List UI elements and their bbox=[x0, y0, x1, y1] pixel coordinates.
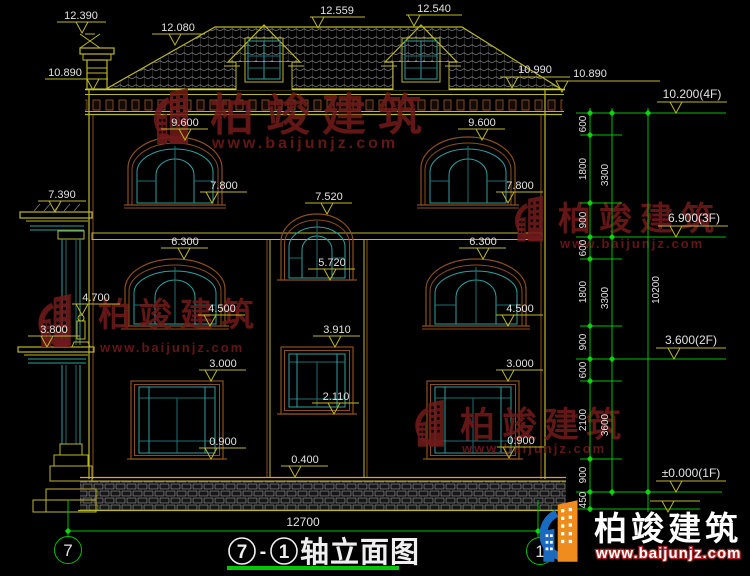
dim-6300-right: 6.300 bbox=[469, 236, 497, 248]
chain-dim: 600 bbox=[578, 115, 589, 132]
title-axis-start: 7 bbox=[237, 542, 248, 563]
dim-6300-left: 6.300 bbox=[171, 236, 199, 248]
dim-10890-left: 10.890 bbox=[48, 67, 82, 79]
window-stair-mid bbox=[277, 347, 357, 414]
watermark-logo bbox=[517, 196, 542, 242]
chimney bbox=[80, 34, 114, 89]
window-3f-left bbox=[124, 137, 226, 208]
chain-dim: 10200 bbox=[651, 276, 662, 304]
brand-url: www.baijunjz.com bbox=[595, 545, 741, 562]
dim-10990: 10.990 bbox=[518, 64, 552, 76]
dim-7800-left: 7.800 bbox=[210, 180, 238, 192]
cad-elevation-screenshot: 柏竣建筑 www.baijunjz.com 柏竣建筑 www.baijunjz.… bbox=[0, 0, 750, 576]
dim-12390: 12.390 bbox=[64, 10, 98, 22]
watermark-logo bbox=[157, 88, 188, 144]
chain-dim: 900 bbox=[578, 333, 589, 350]
title-underline bbox=[227, 566, 399, 570]
watermark-logo bbox=[41, 294, 70, 347]
dim-10890-right: 10.890 bbox=[573, 68, 607, 80]
dim-4500-right: 4.500 bbox=[506, 303, 534, 315]
dim-12080: 12.080 bbox=[161, 22, 195, 34]
chain-dim: 3300 bbox=[600, 163, 611, 186]
chain-dim: 450 bbox=[578, 491, 589, 508]
chain-dim: 1800 bbox=[578, 157, 589, 180]
window-2f-right bbox=[422, 259, 530, 329]
watermark-logo bbox=[418, 400, 444, 447]
dim-12559: 12.559 bbox=[320, 5, 354, 17]
level-4f: 10.200(4F) bbox=[663, 87, 722, 101]
dim-3000-left: 3.000 bbox=[209, 358, 237, 370]
dim-7800-right: 7.800 bbox=[506, 180, 534, 192]
title-block: 7 - 1 轴立面图 bbox=[227, 535, 420, 570]
drawing-title: 轴立面图 bbox=[300, 535, 420, 569]
dim-0900-right: 0.900 bbox=[507, 435, 535, 447]
window-3f-right bbox=[417, 137, 519, 208]
roof bbox=[85, 27, 565, 90]
title-axis-end: 1 bbox=[279, 542, 290, 563]
dim-7390: 7.390 bbox=[48, 189, 76, 201]
dim-0900-left: 0.900 bbox=[209, 436, 237, 448]
dim-5720: 5.720 bbox=[318, 257, 346, 269]
dim-7520: 7.520 bbox=[315, 191, 343, 203]
chain-dim: 3600 bbox=[600, 413, 611, 436]
dim-4700: 4.700 bbox=[82, 292, 110, 304]
brand-logo: 柏竣建筑 www.baijunjz.com bbox=[543, 500, 742, 562]
chain-dim: 600 bbox=[578, 239, 589, 256]
window-stair-upper bbox=[277, 214, 357, 280]
chain-dim: 2100 bbox=[578, 408, 589, 431]
dim-12540: 12.540 bbox=[417, 3, 451, 15]
dim-0400: 0.400 bbox=[291, 454, 319, 466]
level-3f: 6.900(3F) bbox=[668, 211, 720, 225]
plinth bbox=[33, 478, 568, 513]
chain-dim: 900 bbox=[578, 211, 589, 228]
watermark-url: www.baijunjz.com bbox=[211, 135, 398, 152]
level-1f: ±0.000(1F) bbox=[662, 466, 721, 480]
elevation-drawing-canvas: 柏竣建筑 www.baijunjz.com 柏竣建筑 www.baijunjz.… bbox=[0, 0, 750, 576]
dim-3910: 3.910 bbox=[323, 324, 351, 336]
overall-width-dim: 12700 bbox=[286, 515, 320, 529]
chain-dim: 1800 bbox=[578, 280, 589, 303]
title-dash: - bbox=[260, 541, 267, 563]
chain-dim: 900 bbox=[578, 466, 589, 483]
level-2f: 3.600(2F) bbox=[665, 333, 717, 347]
watermark-brand: 柏竣建筑 bbox=[210, 91, 434, 140]
dim-4500-left: 4.500 bbox=[208, 303, 236, 315]
dim-3800: 3.800 bbox=[40, 324, 68, 336]
watermark-url: www.baijunjz.com bbox=[99, 340, 244, 355]
brand-name: 柏竣建筑 bbox=[594, 510, 742, 547]
dim-2110: 2.110 bbox=[323, 391, 350, 403]
dim-9600-right: 9.600 bbox=[468, 117, 496, 129]
axis-bubble-left: 7 bbox=[63, 541, 72, 560]
chain-dim: 3300 bbox=[600, 286, 611, 309]
chain-dim: 600 bbox=[578, 361, 589, 378]
dim-9600-left: 9.600 bbox=[171, 117, 199, 129]
dim-3000-right: 3.000 bbox=[506, 358, 534, 370]
